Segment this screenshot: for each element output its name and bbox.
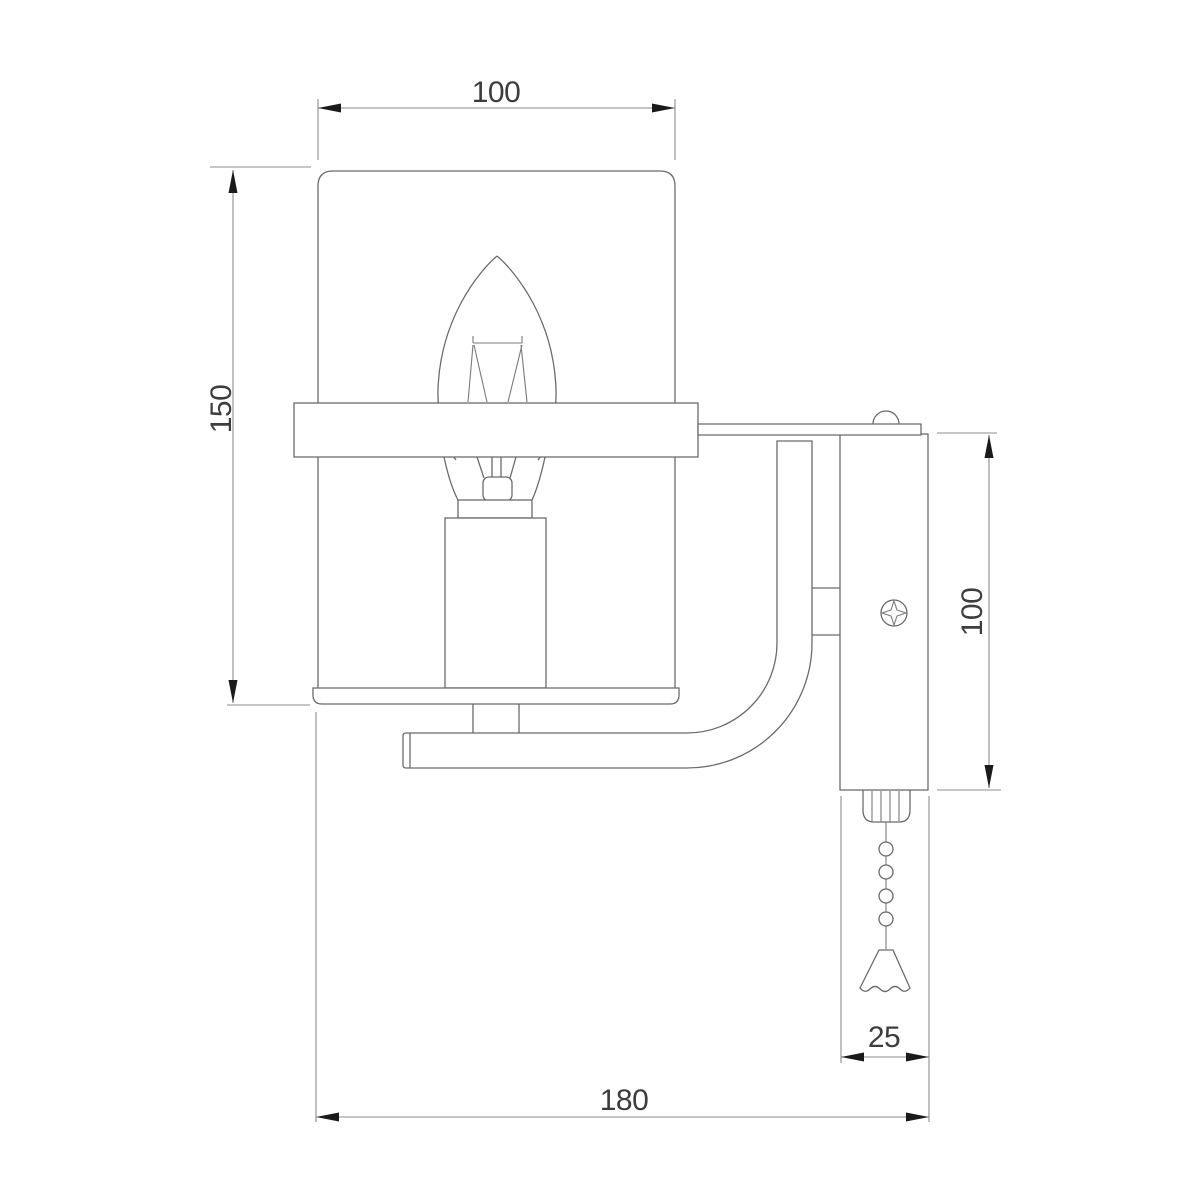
bulb-neck	[444, 457, 545, 501]
drawing-canvas: 100 150 100 25 180	[0, 0, 1200, 1200]
dim-overall-depth: 180	[316, 712, 929, 1122]
dim-label-overall-height: 150	[205, 385, 238, 434]
bulb-press-seal	[483, 477, 512, 501]
lamp-socket	[445, 500, 546, 688]
pull-chain-tassel	[860, 950, 910, 992]
chain-bead	[879, 912, 893, 926]
dim-label-wall-plate-height: 100	[956, 588, 989, 637]
dim-label-overall-depth: 180	[600, 1084, 649, 1117]
dim-right-height: 100	[937, 433, 1001, 790]
wall-sconce-dimension-drawing: 100 150 100 25 180	[0, 0, 1200, 1200]
dim-label-wall-plate-depth: 25	[868, 1021, 900, 1054]
pull-switch-knob	[863, 790, 910, 822]
bulb-filament	[468, 336, 527, 402]
mount-top-bar	[698, 411, 921, 435]
arm-wall-connector	[812, 588, 840, 635]
dim-label-shade-width: 100	[472, 76, 521, 109]
mount-screw-head	[873, 411, 899, 424]
shade-ring	[294, 403, 698, 457]
chain-bead	[879, 842, 893, 856]
chain-bead	[879, 865, 893, 879]
dim-top-width: 100	[318, 76, 675, 160]
chain-bead	[879, 889, 893, 903]
socket-body	[445, 518, 546, 688]
pull-chain	[879, 822, 893, 949]
bulb-base	[458, 500, 532, 518]
arm-stem	[473, 704, 519, 733]
shade-base-plate	[313, 688, 679, 704]
